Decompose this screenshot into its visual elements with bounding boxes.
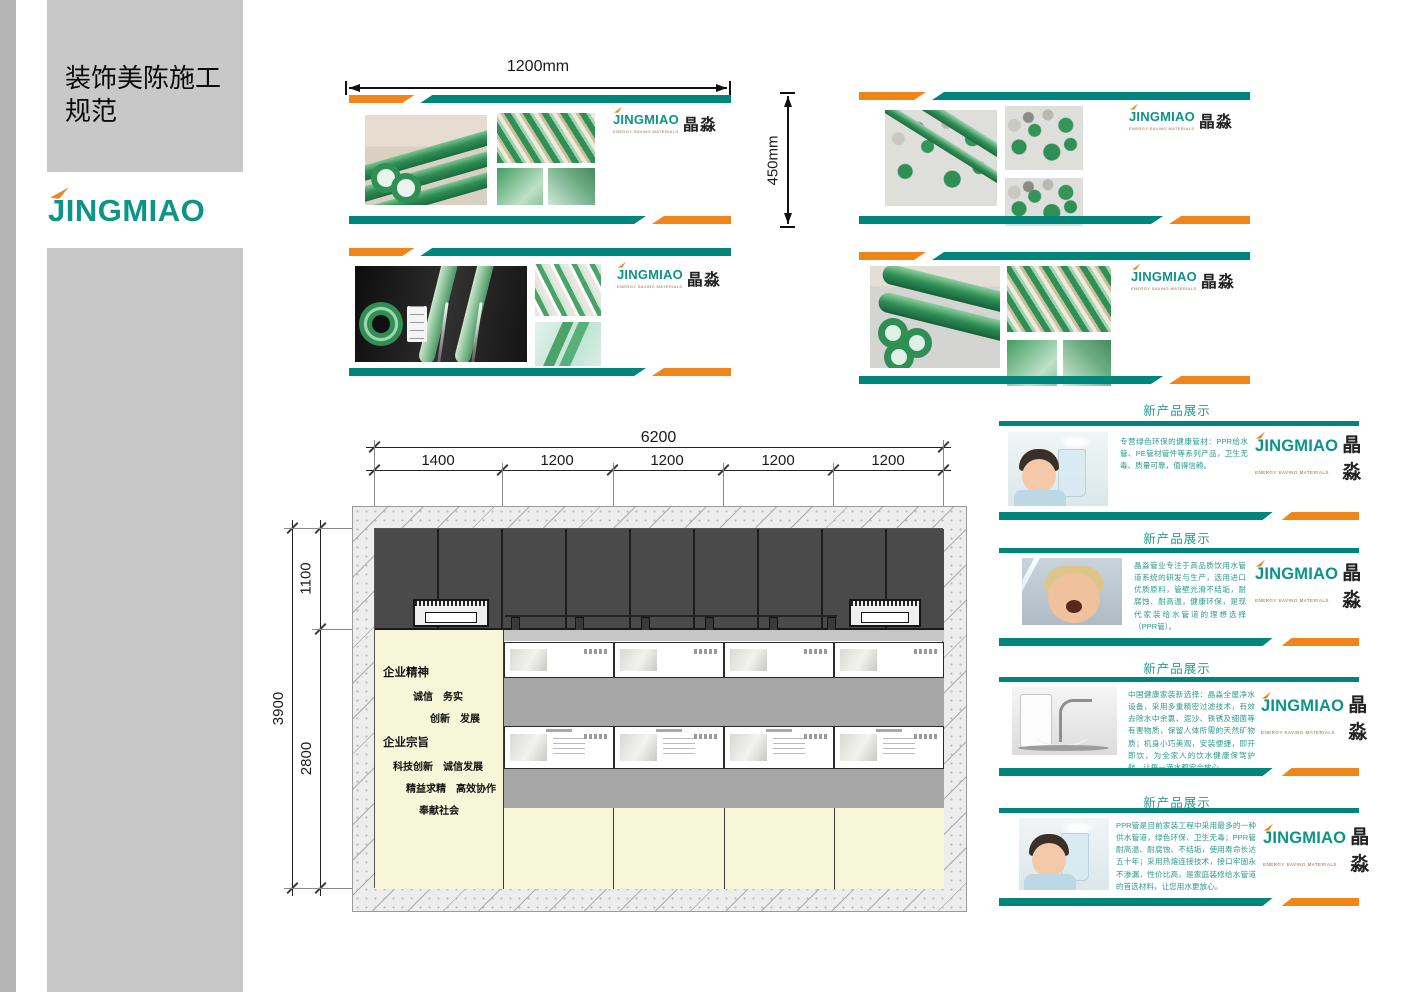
banner-top-stripe — [855, 252, 1250, 260]
pipe-end-ring — [884, 342, 914, 368]
banner-bottom-stripe — [345, 216, 731, 224]
poster-art — [730, 734, 767, 760]
dim-extension — [312, 629, 352, 630]
stripe-orange — [859, 92, 926, 100]
stripe-teal — [999, 898, 1273, 906]
photo-girl-with-glass — [1019, 818, 1109, 890]
card-bottom-stripe — [999, 638, 1359, 646]
tube-shape — [1035, 719, 1090, 747]
brand-cn: 晶淼 — [1201, 268, 1235, 292]
new-product-card-1: 新产品展示 专营绿色环保的健康管材：PPR给水管、PE管材管件等系列产品，卫生无… — [997, 400, 1367, 522]
stripe-teal — [349, 216, 646, 224]
poster-logo — [914, 734, 938, 739]
stripe-teal — [859, 376, 1163, 384]
poster-text-lines — [883, 738, 915, 758]
culture-panel: 企业精神 诚信 务实 创新 发展 企业宗旨 科技创新 诚信发展 精益求精 高效协… — [375, 630, 504, 889]
brand-name: JINGMIAO — [1255, 565, 1338, 583]
stripe-orange — [1169, 376, 1250, 384]
poster-art — [510, 734, 547, 760]
mini-card-poster — [834, 726, 944, 769]
dim-extension — [284, 888, 352, 889]
stripe-orange — [1282, 638, 1359, 646]
pipe-end-ring — [391, 173, 421, 203]
photo-water-purifier — [1012, 687, 1117, 755]
arrow-right-icon — [716, 84, 727, 92]
stripe-teal — [420, 248, 731, 256]
brand-tagline: ENERGY SAVING MATERIALS — [1131, 286, 1197, 292]
stripe-teal — [420, 95, 731, 103]
poster-text-lines — [663, 738, 695, 758]
card-title: 新产品展示 — [997, 658, 1357, 677]
card-text: 晶淼管业专注于高品质饮用水管道系统的研发与生产，选用进口优质原料，管壁光滑不结垢… — [1134, 560, 1246, 633]
banner-bottom-stripe — [855, 216, 1250, 224]
girl-body-shape — [1024, 874, 1076, 890]
spec-label-shape — [407, 306, 427, 342]
pipe-cross-section-inset — [359, 302, 403, 346]
purpose-line: 科技创新 诚信发展 — [393, 758, 483, 773]
new-product-card-3: 新产品展示 中国健康家装新选择：晶淼全屋净水设备，采用多重精密过滤技术，有效去除… — [997, 658, 1367, 780]
photo-pipe-detail — [548, 168, 595, 205]
new-product-card-4: 新产品展示 PPR管是目前家装工程中采用最多的一种供水管道，绿色环保、卫生无毒；… — [997, 792, 1367, 914]
photo-child-drinking — [1022, 558, 1122, 625]
brand-tagline: ENERGY SAVING MATERIALS — [613, 129, 679, 135]
dim-total-label: 6200 — [374, 429, 943, 447]
card-top-bar — [999, 677, 1359, 682]
dim-endbar — [780, 92, 795, 94]
arrow-down-icon — [784, 213, 792, 224]
jingmiao-logo: JINGMIAO ENERGY SAVING MATERIALS 晶淼 — [1255, 558, 1367, 612]
poster-art — [840, 649, 877, 671]
brand-tagline: ENERGY SAVING MATERIALS — [1255, 470, 1338, 476]
purpose-line: 精益求精 高效协作 — [406, 780, 496, 795]
poster-title — [656, 729, 682, 732]
spirit-line: 创新 发展 — [430, 710, 480, 725]
fixture-lamp — [425, 612, 477, 623]
mini-banner-poster — [724, 642, 834, 678]
brand-cn: 晶淼 — [1348, 690, 1368, 744]
jingmiao-logo: JINGMIAO ENERGY SAVING MATERIALS 晶淼 — [1131, 268, 1235, 292]
girl-head-shape — [1022, 459, 1056, 493]
dim-seg-label: 1200 — [612, 452, 722, 469]
photo-pipes-ice — [535, 322, 601, 366]
photo-pipe-profiles — [1007, 266, 1111, 332]
stripe-orange — [652, 368, 731, 376]
photo-fittings-scatter — [885, 110, 997, 206]
dim-banner-height-label: 450mm — [765, 135, 782, 185]
dim-endbar — [780, 226, 795, 228]
poster-title — [876, 729, 902, 732]
brand-tagline: ENERGY SAVING MATERIALS — [1261, 730, 1344, 736]
poster-logo — [804, 649, 828, 654]
dim-vtop-label: 1100 — [298, 562, 315, 594]
child-head-shape — [1048, 573, 1100, 623]
poster-text-lines — [553, 738, 585, 758]
stripe-teal — [999, 512, 1273, 520]
jingmiao-logo: JINGMIAO ENERGY SAVING MATERIALS 晶淼 — [1261, 690, 1368, 744]
stripe-orange — [1169, 216, 1250, 224]
dim-seg-label: 1200 — [723, 452, 833, 469]
cream-panel-cell — [834, 808, 944, 889]
dim-endbar — [729, 81, 731, 96]
banner-fittings: JINGMIAO ENERGY SAVING MATERIALS 晶淼 — [855, 90, 1250, 230]
stripe-teal — [932, 252, 1250, 260]
spirit-heading: 企业精神 — [383, 664, 429, 680]
stripe-teal — [999, 768, 1273, 776]
dim-banner-height: 450mm — [760, 92, 804, 228]
card-title: 新产品展示 — [997, 528, 1357, 547]
water-glass-shape — [1058, 449, 1086, 497]
brand-name: JINGMIAO — [1131, 269, 1197, 284]
poster-row-1 — [504, 642, 944, 678]
mini-banner-poster — [834, 642, 944, 678]
dim-seg-label: 1200 — [502, 452, 612, 469]
brand-cn: 晶淼 — [1342, 558, 1367, 612]
hanging-rail — [505, 615, 837, 629]
stripe-orange — [349, 248, 415, 256]
stripe-orange — [349, 95, 415, 103]
stripe-teal — [349, 368, 646, 376]
banner-pipe-stack: JINGMIAO ENERGY SAVING MATERIALS 晶淼 — [855, 250, 1250, 390]
new-product-card-2: 新产品展示 晶淼管业专注于高品质饮用水管道系统的研发与生产，选用进口优质原料，管… — [997, 528, 1367, 650]
photo-green-pipes — [365, 115, 487, 205]
mini-card-poster — [614, 726, 724, 769]
brand-cn: 晶淼 — [687, 266, 721, 290]
mini-card-poster — [504, 726, 614, 769]
purifier-base-shape — [1018, 745, 1108, 751]
photo-pipe-profiles — [497, 113, 595, 163]
banner-bottom-stripe — [345, 368, 731, 376]
page-title-line1: 装饰美陈施工 — [65, 62, 221, 95]
card-bottom-stripe — [999, 768, 1359, 776]
brand-name: JINGMIAO — [613, 112, 679, 127]
poster-logo — [584, 649, 608, 654]
dim-arrow-shaft — [349, 87, 727, 89]
dim-arrow-shaft — [787, 96, 789, 224]
stripe-orange — [1282, 512, 1359, 520]
purpose-heading: 企业宗旨 — [383, 734, 429, 750]
card-top-bar — [999, 808, 1359, 813]
rail-shadow-strip — [504, 630, 944, 641]
card-text: 专营绿色环保的健康管材：PPR给水管、PE管材管件等系列产品，卫生无毒、质量可靠… — [1120, 436, 1248, 472]
card-top-bar — [999, 421, 1359, 426]
stripe-teal — [932, 92, 1250, 100]
photo-pipe-bundle — [497, 168, 543, 205]
poster-row-2 — [504, 726, 944, 769]
cream-panel-cell — [724, 808, 834, 889]
brand-tagline: ENERGY SAVING MATERIALS — [1255, 598, 1338, 604]
mini-banner-poster — [614, 642, 724, 678]
light-fixture — [413, 599, 489, 627]
wall-band — [504, 678, 944, 726]
jingmiao-logo: JINGMIAO ENERGY SAVING MATERIALS 晶淼 — [617, 266, 721, 290]
dim-extension — [943, 440, 944, 514]
brand-name: JINGMIAO — [48, 193, 205, 229]
card-bottom-stripe — [999, 898, 1359, 906]
ceiling-band — [375, 529, 944, 630]
poster-text-lines — [773, 738, 805, 758]
banner-top-stripe — [345, 248, 731, 256]
card-bottom-stripe — [999, 512, 1359, 520]
mini-banner-poster — [504, 642, 614, 678]
poster-art — [620, 734, 657, 760]
brand-cn: 晶淼 — [1199, 108, 1233, 132]
lower-cream-panels — [504, 808, 944, 889]
child-mouth-shape — [1066, 600, 1082, 613]
poster-logo — [694, 734, 718, 739]
photo-pipe-row — [535, 264, 601, 316]
page-title: 装饰美陈施工 规范 — [65, 62, 221, 128]
photo-fittings-group — [1005, 106, 1083, 170]
brand-tagline: ENERGY SAVING MATERIALS — [1263, 862, 1346, 868]
stripe-orange — [652, 216, 731, 224]
sidebar-lower-box — [47, 248, 243, 992]
cream-panel-cell — [504, 808, 613, 889]
dim-extension — [374, 440, 375, 514]
purpose-line: 奉献社会 — [419, 802, 459, 817]
dim-vtotal-label: 3900 — [270, 692, 287, 725]
brand-name: JINGMIAO — [1261, 697, 1344, 715]
jingmiao-logo: JINGMIAO ENERGY SAVING MATERIALS 晶淼 — [613, 111, 717, 135]
cream-panel-cell — [613, 808, 723, 889]
poster-art — [840, 734, 877, 760]
brand-cn: 晶淼 — [683, 111, 717, 135]
dim-endbar — [345, 81, 347, 96]
dim-banner-width-label: 1200mm — [345, 58, 731, 76]
poster-title — [766, 729, 792, 732]
banner-pipes-light: JINGMIAO ENERGY SAVING MATERIALS 晶淼 — [345, 95, 731, 228]
brand-cn: 晶淼 — [1350, 822, 1370, 876]
dim-extension — [284, 528, 352, 529]
card-text: PPR管是目前家装工程中采用最多的一种供水管道，绿色环保、卫生无毒；PPR管耐高… — [1116, 820, 1256, 893]
page-title-line2: 规范 — [65, 95, 221, 128]
banner-dark-water: JINGMIAO ENERGY SAVING MATERIALS 晶淼 — [345, 246, 731, 382]
brand-name: JINGMIAO — [1255, 437, 1338, 455]
dim-vbottom-label: 2800 — [298, 742, 315, 775]
fixture-hatch — [851, 601, 919, 606]
light-fixture — [849, 599, 921, 627]
poster-logo — [694, 649, 718, 654]
poster-art — [510, 649, 547, 671]
jingmiao-logo: JINGMIAO ENERGY SAVING MATERIALS 晶淼 — [1129, 108, 1233, 132]
girl-body-shape — [1014, 490, 1066, 506]
poster-logo — [584, 734, 608, 739]
wall-band — [504, 769, 944, 808]
stripe-orange — [859, 252, 926, 260]
jingmiao-logo: JINGMIAO ENERGY SAVING MATERIALS 晶淼 — [1263, 822, 1370, 876]
card-text: 中国健康家装新选择：晶淼全屋净水设备，采用多重精密过滤技术，有效去除水中余氯、泥… — [1128, 689, 1255, 774]
photo-girl-with-glass — [1008, 432, 1108, 506]
jingmiao-logo: JINGMIAO ENERGY SAVING MATERIALS 晶淼 — [1255, 430, 1367, 484]
brand-name: JINGMIAO — [1129, 109, 1195, 124]
dim-line-total — [366, 447, 951, 448]
fixture-hatch — [415, 601, 487, 606]
card-top-bar — [999, 548, 1359, 553]
photo-pipe-stack — [870, 266, 1000, 368]
banner-top-stripe — [855, 92, 1250, 100]
mini-card-poster — [724, 726, 834, 769]
stripe-orange — [1282, 898, 1359, 906]
banner-top-stripe — [345, 95, 731, 103]
stripe-teal — [859, 216, 1163, 224]
dim-line-segments — [366, 470, 951, 471]
poster-art — [620, 649, 657, 671]
brand-name: JINGMIAO — [1263, 829, 1346, 847]
arrow-up-icon — [784, 96, 792, 107]
banner-bottom-stripe — [855, 376, 1250, 384]
brand-tagline: ENERGY SAVING MATERIALS — [617, 284, 683, 290]
girl-head-shape — [1032, 843, 1066, 877]
poster-logo — [804, 734, 828, 739]
dim-line-vtotal — [292, 520, 293, 896]
dim-banner-width: 1200mm — [345, 58, 731, 96]
poster-title — [546, 729, 572, 732]
water-splash-shape — [1058, 435, 1092, 449]
arrow-left-icon — [349, 84, 360, 92]
brand-tagline: ENERGY SAVING MATERIALS — [1129, 126, 1195, 132]
brand-name: JINGMIAO — [617, 267, 683, 282]
stripe-teal — [999, 638, 1273, 646]
spirit-line: 诚信 务实 — [413, 688, 463, 703]
spec-sheet-page: 装饰美陈施工 规范 JINGMIAO 1200mm 450mm — [0, 0, 1403, 992]
stripe-orange — [1282, 768, 1359, 776]
poster-art — [730, 649, 767, 671]
elevation-interior: 企业精神 诚信 务实 创新 发展 企业宗旨 科技创新 诚信发展 精益求精 高效协… — [374, 528, 943, 888]
sidebar-brand-logo: JINGMIAO — [48, 188, 205, 234]
left-edge-strip — [0, 0, 16, 992]
fixture-lamp — [861, 612, 910, 623]
card-title: 新产品展示 — [997, 400, 1357, 419]
water-stream-shape — [1022, 558, 1040, 593]
poster-logo — [914, 649, 938, 654]
dim-line-vsegs — [320, 520, 321, 896]
dim-seg-label: 1200 — [833, 452, 943, 469]
brand-cn: 晶淼 — [1342, 430, 1367, 484]
dim-seg-label: 1400 — [374, 452, 502, 469]
